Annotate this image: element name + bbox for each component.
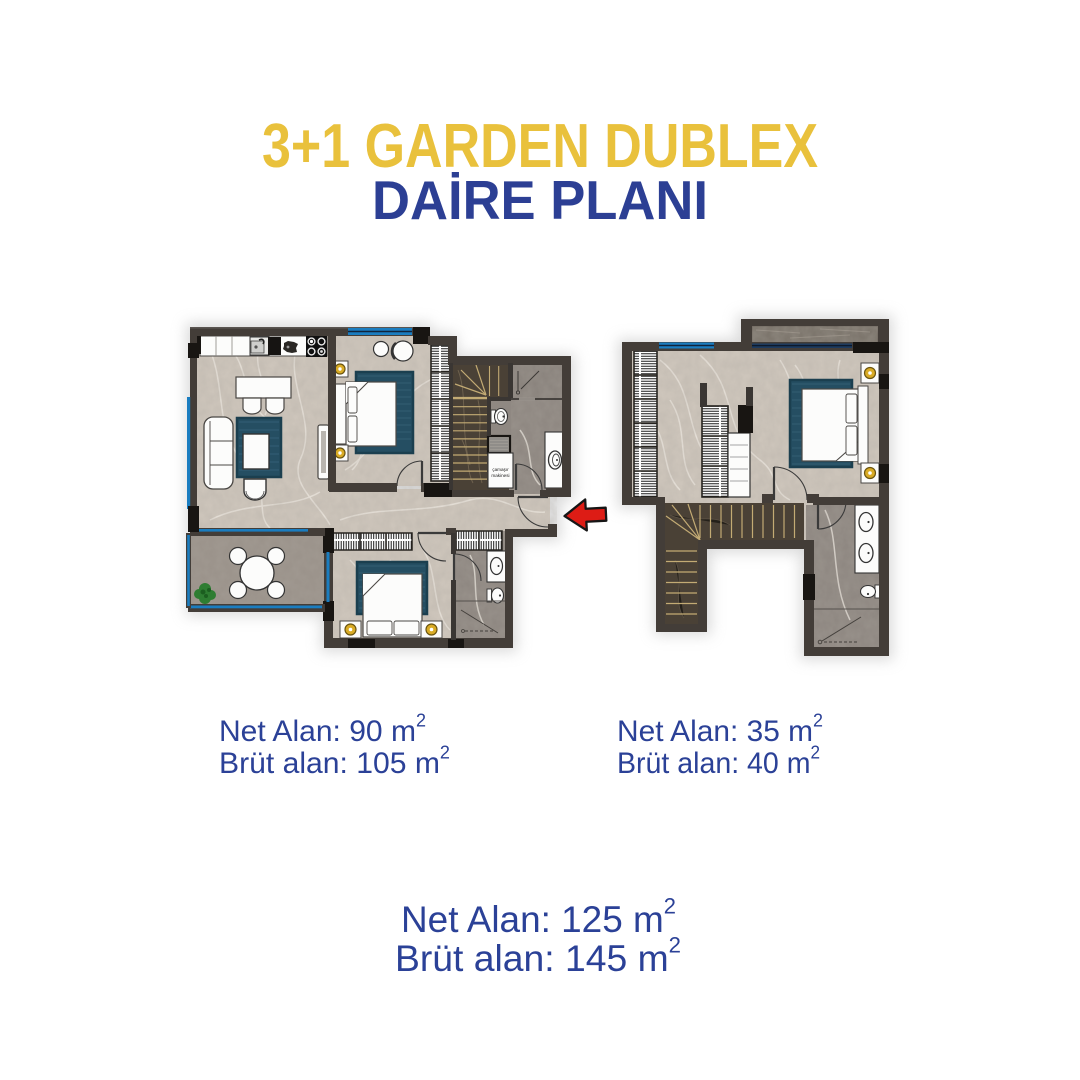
svg-text:Brüt alan: 145 m2: Brüt alan: 145 m2 bbox=[395, 933, 681, 979]
svg-text:Net Alan: 125 m2: Net Alan: 125 m2 bbox=[401, 894, 676, 940]
svg-text:Brüt alan: 105 m2: Brüt alan: 105 m2 bbox=[219, 743, 450, 780]
svg-text:DAİRE PLANI: DAİRE PLANI bbox=[372, 169, 708, 231]
svg-text:Brüt alan: 40 m2: Brüt alan: 40 m2 bbox=[617, 743, 820, 780]
svg-text:makinesi: makinesi bbox=[491, 473, 509, 478]
svg-text:Net Alan: 90 m2: Net Alan: 90 m2 bbox=[219, 711, 426, 748]
svg-text:Net Alan: 35 m2: Net Alan: 35 m2 bbox=[617, 711, 823, 748]
svg-text:çamaşır: çamaşır bbox=[492, 467, 509, 472]
